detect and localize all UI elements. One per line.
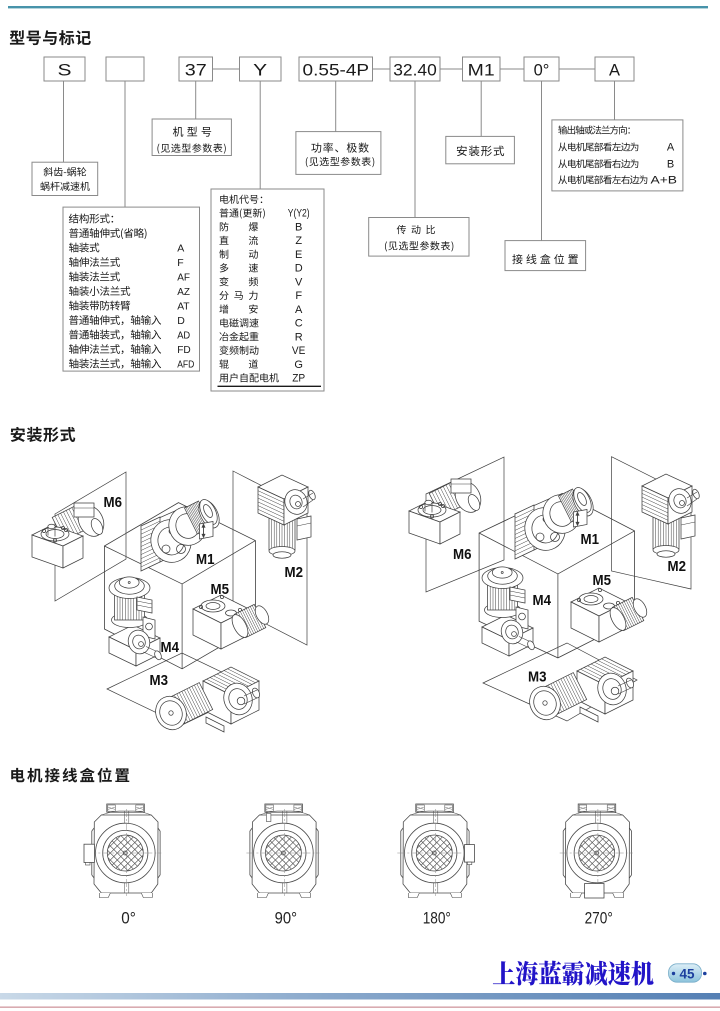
svg-text:M1: M1	[196, 551, 215, 568]
svg-text:AT: AT	[177, 301, 190, 313]
svg-text:V: V	[295, 276, 303, 288]
svg-text:M1: M1	[581, 531, 600, 548]
svg-text:FD: FD	[177, 344, 191, 356]
svg-text:Y(Y2): Y(Y2)	[288, 208, 310, 220]
svg-text:D: D	[295, 263, 303, 275]
svg-text:A: A	[609, 62, 620, 80]
svg-text:AF: AF	[177, 272, 190, 284]
svg-text:M3: M3	[150, 672, 169, 689]
svg-text:M5: M5	[211, 581, 230, 598]
svg-text:A+B: A+B	[651, 174, 678, 186]
svg-text:A: A	[177, 243, 184, 255]
svg-text:B: B	[667, 158, 674, 170]
svg-text:VE: VE	[292, 345, 306, 357]
svg-text:S: S	[58, 62, 72, 80]
svg-text:270°: 270°	[585, 908, 613, 927]
svg-text:F: F	[177, 257, 183, 269]
svg-text:Y: Y	[253, 62, 267, 80]
svg-text:M2: M2	[285, 564, 304, 581]
svg-text:37: 37	[185, 62, 207, 80]
svg-text:45: 45	[679, 967, 695, 982]
svg-text:M1: M1	[468, 62, 495, 80]
svg-text:M4: M4	[161, 639, 180, 656]
svg-text:E: E	[295, 249, 302, 261]
svg-text:A: A	[295, 304, 303, 316]
svg-text:M3: M3	[528, 669, 547, 686]
svg-text:D: D	[177, 315, 185, 327]
svg-text:0°: 0°	[534, 62, 550, 80]
svg-text:0°: 0°	[121, 908, 136, 927]
svg-text:180°: 180°	[423, 908, 451, 927]
svg-text:C: C	[295, 318, 303, 330]
svg-text:M6: M6	[104, 494, 123, 511]
svg-text:AZ: AZ	[177, 286, 190, 298]
svg-text:32.40: 32.40	[393, 62, 437, 80]
svg-text:M5: M5	[593, 572, 612, 589]
svg-text:B: B	[295, 222, 302, 234]
svg-text:A: A	[667, 142, 675, 154]
svg-text:90°: 90°	[275, 908, 297, 927]
svg-text:M6: M6	[453, 546, 472, 563]
svg-text:G: G	[294, 359, 303, 371]
svg-text:M2: M2	[668, 558, 687, 575]
svg-text:AFD: AFD	[177, 359, 195, 371]
svg-text:0.55-4P: 0.55-4P	[303, 62, 370, 80]
svg-text:AD: AD	[177, 330, 190, 342]
svg-text:R: R	[295, 331, 303, 343]
svg-text:Z: Z	[295, 235, 302, 247]
svg-text:M4: M4	[533, 592, 552, 609]
svg-text:F: F	[295, 290, 302, 302]
svg-text:ZP: ZP	[292, 373, 305, 385]
